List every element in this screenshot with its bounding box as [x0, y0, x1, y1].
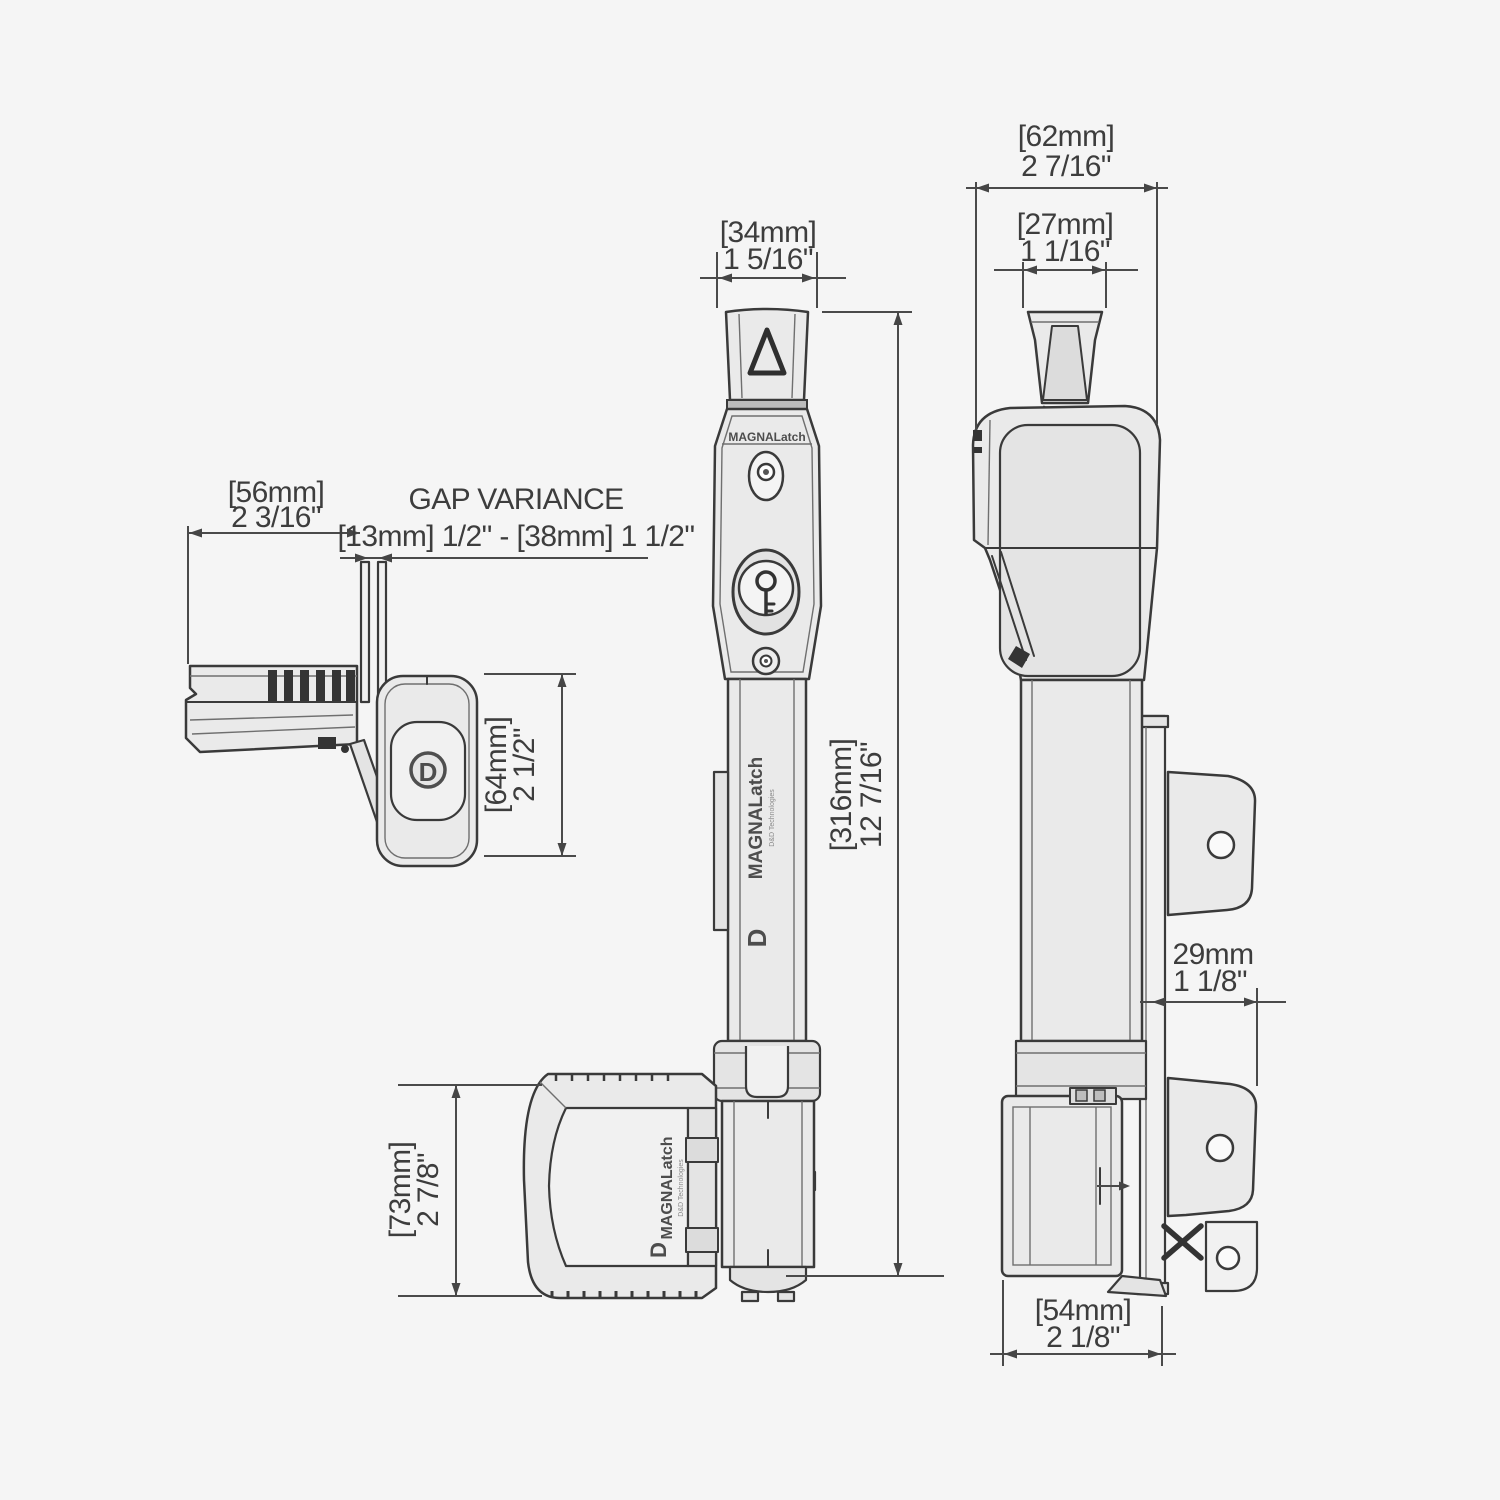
- svg-text:2 7/8": 2 7/8": [412, 1153, 445, 1227]
- dd-logo-top: D: [411, 753, 445, 787]
- gate-upright: [361, 562, 369, 702]
- brand-label-head: MAGNALatch: [728, 430, 805, 444]
- gap-variance-range: [13mm] 1/2" - [38mm] 1 1/2": [338, 520, 695, 553]
- latch-stem-side: [1021, 680, 1142, 1041]
- striker-pin: [318, 737, 336, 749]
- gate-post-front: [722, 1101, 814, 1267]
- dd-logo-bottom: D: [646, 1242, 671, 1258]
- latch-indicator: [749, 452, 783, 500]
- pull-knob-front: [726, 309, 808, 400]
- lock-head: [713, 409, 821, 679]
- gap-variance-title: GAP VARIANCE: [408, 483, 623, 516]
- svg-text:MAGNALatch: MAGNALatch: [746, 757, 767, 879]
- svg-text:1 5/16": 1 5/16": [723, 243, 813, 276]
- dd-logo-stem: D: [742, 929, 772, 948]
- svg-text:2 1/8": 2 1/8": [1046, 1321, 1120, 1354]
- svg-text:12 7/16": 12 7/16": [855, 742, 888, 848]
- screw-front: [753, 648, 779, 674]
- svg-text:MAGNALatch: MAGNALatch: [659, 1136, 676, 1239]
- lower-bracket-hole: [1207, 1135, 1233, 1161]
- svg-text:2 3/16": 2 3/16": [231, 501, 321, 534]
- svg-text:D&D Technologies: D&D Technologies: [678, 1159, 685, 1217]
- post-cap: [730, 1267, 806, 1292]
- svg-text:1 1/16": 1 1/16": [1020, 235, 1110, 268]
- svg-text:[62mm]: [62mm]: [1018, 120, 1114, 153]
- svg-text:2 1/2": 2 1/2": [508, 728, 541, 802]
- upper-bracket-hole: [1208, 832, 1234, 858]
- svg-text:2 7/16": 2 7/16": [1021, 150, 1111, 183]
- key-lock-icon: [733, 550, 799, 634]
- stem-side-tab: [714, 772, 728, 930]
- dimension-drawing: D MAGNALatch: [0, 0, 1500, 1500]
- post-upright: [378, 562, 386, 702]
- clamp-tongue: [746, 1046, 788, 1097]
- svg-text:1 1/8": 1 1/8": [1173, 965, 1247, 998]
- svg-text:[316mm]: [316mm]: [825, 739, 858, 852]
- svg-text:D: D: [419, 757, 438, 787]
- svg-text:D&D Technologies: D&D Technologies: [769, 789, 776, 847]
